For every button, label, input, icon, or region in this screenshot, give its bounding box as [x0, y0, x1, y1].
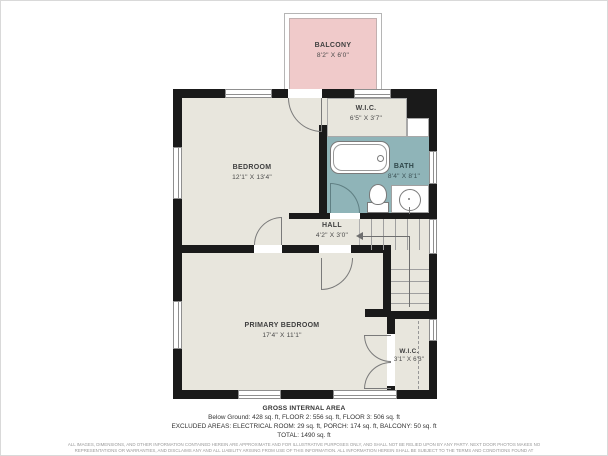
sink-counter	[391, 185, 429, 213]
door-opening	[254, 245, 282, 253]
stair-tread	[407, 219, 408, 250]
window	[354, 89, 391, 98]
wall	[429, 89, 437, 151]
floor-areas-line: Below Ground: 428 sq. ft, FLOOR 2: 556 s…	[1, 414, 607, 421]
wic-bottom-label: W.I.C. 3'1" X 6'3"	[394, 347, 424, 365]
primary-bedroom-name: PRIMARY BEDROOM	[245, 321, 320, 331]
primary-bedroom-label: PRIMARY BEDROOM 17'4" X 11'1"	[245, 321, 320, 341]
wall	[383, 245, 391, 317]
excluded-areas-line: EXCLUDED AREAS: ELECTRICAL ROOM: 29 sq. …	[1, 423, 607, 430]
toilet-bowl-icon	[369, 184, 387, 205]
wic-bottom-dims: 3'1" X 6'3"	[394, 356, 424, 365]
wall	[173, 89, 182, 147]
stair-tread	[391, 293, 429, 294]
floor-plan-canvas: BALCONY 8'2" X 6'0"	[0, 0, 608, 456]
wic-top-name: W.I.C.	[350, 104, 382, 114]
wall	[387, 317, 395, 334]
window	[429, 319, 437, 341]
wic-bottom-name: W.I.C.	[394, 347, 424, 356]
stair-tread	[391, 303, 429, 304]
wall	[429, 254, 437, 319]
total-area-line: TOTAL: 1490 sq. ft	[1, 432, 607, 439]
hall-name: HALL	[316, 221, 348, 231]
door-opening	[288, 89, 322, 98]
door-opening	[319, 245, 351, 253]
window	[333, 390, 397, 399]
balcony-label: BALCONY 8'2" X 6'0"	[315, 41, 352, 61]
wic-top-label: W.I.C. 6'5" X 3'7"	[350, 104, 382, 124]
sink-icon	[399, 189, 421, 211]
window	[429, 219, 437, 254]
wall	[173, 199, 182, 301]
bedroom-dims: 12'1" X 13'4"	[232, 173, 272, 183]
wall	[387, 311, 429, 319]
stair-tread	[371, 219, 372, 250]
wall	[282, 245, 319, 253]
wall	[289, 213, 330, 219]
hall-dims: 4'2" X 3'0"	[316, 231, 348, 241]
wall	[322, 89, 354, 98]
stair-tread	[391, 281, 429, 282]
primary-bedroom-dims: 17'4" X 11'1"	[245, 331, 320, 341]
window	[225, 89, 272, 98]
balcony-name: BALCONY	[315, 41, 352, 51]
stair-tread	[383, 219, 384, 250]
wall	[319, 125, 327, 219]
bath-label: BATH 8'4" X 8'1"	[388, 162, 420, 182]
stair-tread	[419, 219, 420, 250]
wall	[281, 390, 333, 399]
bath-name: BATH	[388, 162, 420, 172]
bathtub-icon	[330, 141, 390, 174]
stair-direction-arrow	[356, 232, 363, 240]
balcony-dims: 8'2" X 6'0"	[315, 51, 352, 61]
door-opening	[330, 213, 360, 219]
utility-niche	[407, 118, 429, 137]
stair-tread	[395, 219, 396, 250]
window	[238, 390, 281, 399]
stair-walk-line	[363, 236, 409, 237]
wall	[272, 89, 288, 98]
wall	[429, 184, 437, 219]
window	[173, 301, 182, 349]
bedroom-name: BEDROOM	[232, 163, 272, 173]
wall	[407, 98, 429, 118]
disclaimer-text: ALL IMAGES, DIMENSIONS, AND OTHER INFORM…	[54, 442, 554, 456]
footer-area-summary: GROSS INTERNAL AREA Below Ground: 428 sq…	[1, 405, 607, 456]
wall	[429, 341, 437, 399]
wic-top-dims: 6'5" X 3'7"	[350, 114, 382, 124]
stair-walk-line	[409, 236, 410, 307]
wall	[173, 349, 182, 399]
bath-dims: 8'4" X 8'1"	[388, 172, 420, 182]
wall	[182, 245, 254, 253]
gross-internal-area-title: GROSS INTERNAL AREA	[1, 405, 607, 412]
window	[429, 151, 437, 184]
bedroom-label: BEDROOM 12'1" X 13'4"	[232, 163, 272, 183]
wall	[173, 390, 238, 399]
stair-tread	[391, 269, 429, 270]
hall-label: HALL 4'2" X 3'0"	[316, 221, 348, 241]
window	[173, 147, 182, 199]
